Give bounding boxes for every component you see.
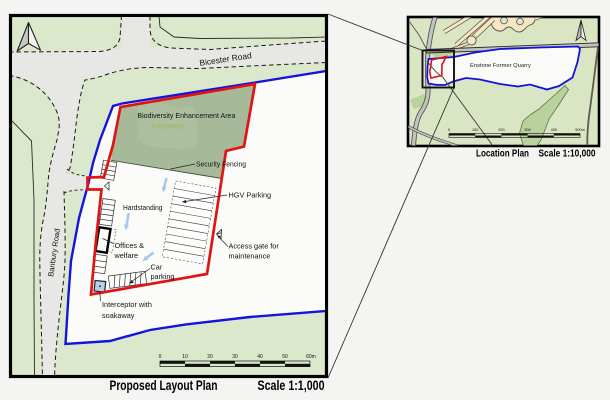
svg-text:Enstone Former Quarry: Enstone Former Quarry: [470, 63, 531, 69]
svg-text:Location Plan: Location Plan: [476, 149, 529, 160]
svg-text:20: 20: [207, 354, 213, 360]
svg-text:300: 300: [524, 128, 530, 132]
svg-text:200: 200: [498, 128, 504, 132]
svg-text:Hardstanding: Hardstanding: [123, 203, 163, 212]
svg-text:Interceptor with: Interceptor with: [102, 300, 152, 309]
svg-text:30: 30: [232, 354, 238, 360]
svg-text:HGV Parking: HGV Parking: [229, 191, 272, 200]
svg-text:Biodiversity Enhancement Area: Biodiversity Enhancement Area: [137, 111, 236, 120]
svg-text:Car: Car: [151, 263, 163, 272]
svg-text:0: 0: [448, 128, 450, 132]
svg-text:Proposed Layout Plan: Proposed Layout Plan: [110, 378, 218, 393]
svg-text:Offices &: Offices &: [115, 241, 145, 250]
svg-text:10: 10: [182, 354, 188, 360]
svg-text:parking: parking: [151, 272, 175, 281]
svg-text:0: 0: [159, 354, 162, 360]
svg-text:Scale 1:10,000: Scale 1:10,000: [539, 149, 596, 160]
svg-text:40: 40: [257, 354, 263, 360]
svg-text:Security Fencing: Security Fencing: [196, 160, 246, 169]
svg-text:100: 100: [472, 128, 478, 132]
svg-text:Scale 1:1,000: Scale 1:1,000: [258, 378, 325, 393]
svg-text:500m: 500m: [575, 128, 585, 132]
svg-text:maintenance: maintenance: [229, 252, 271, 261]
svg-text:60m: 60m: [306, 354, 316, 360]
svg-text:Access gate for: Access gate for: [229, 242, 280, 251]
svg-text:Knotweed: Knotweed: [152, 122, 183, 131]
svg-text:welfare: welfare: [114, 251, 139, 260]
svg-text:50: 50: [282, 354, 288, 360]
svg-text:soakaway: soakaway: [102, 311, 135, 320]
svg-text:400: 400: [551, 128, 557, 132]
